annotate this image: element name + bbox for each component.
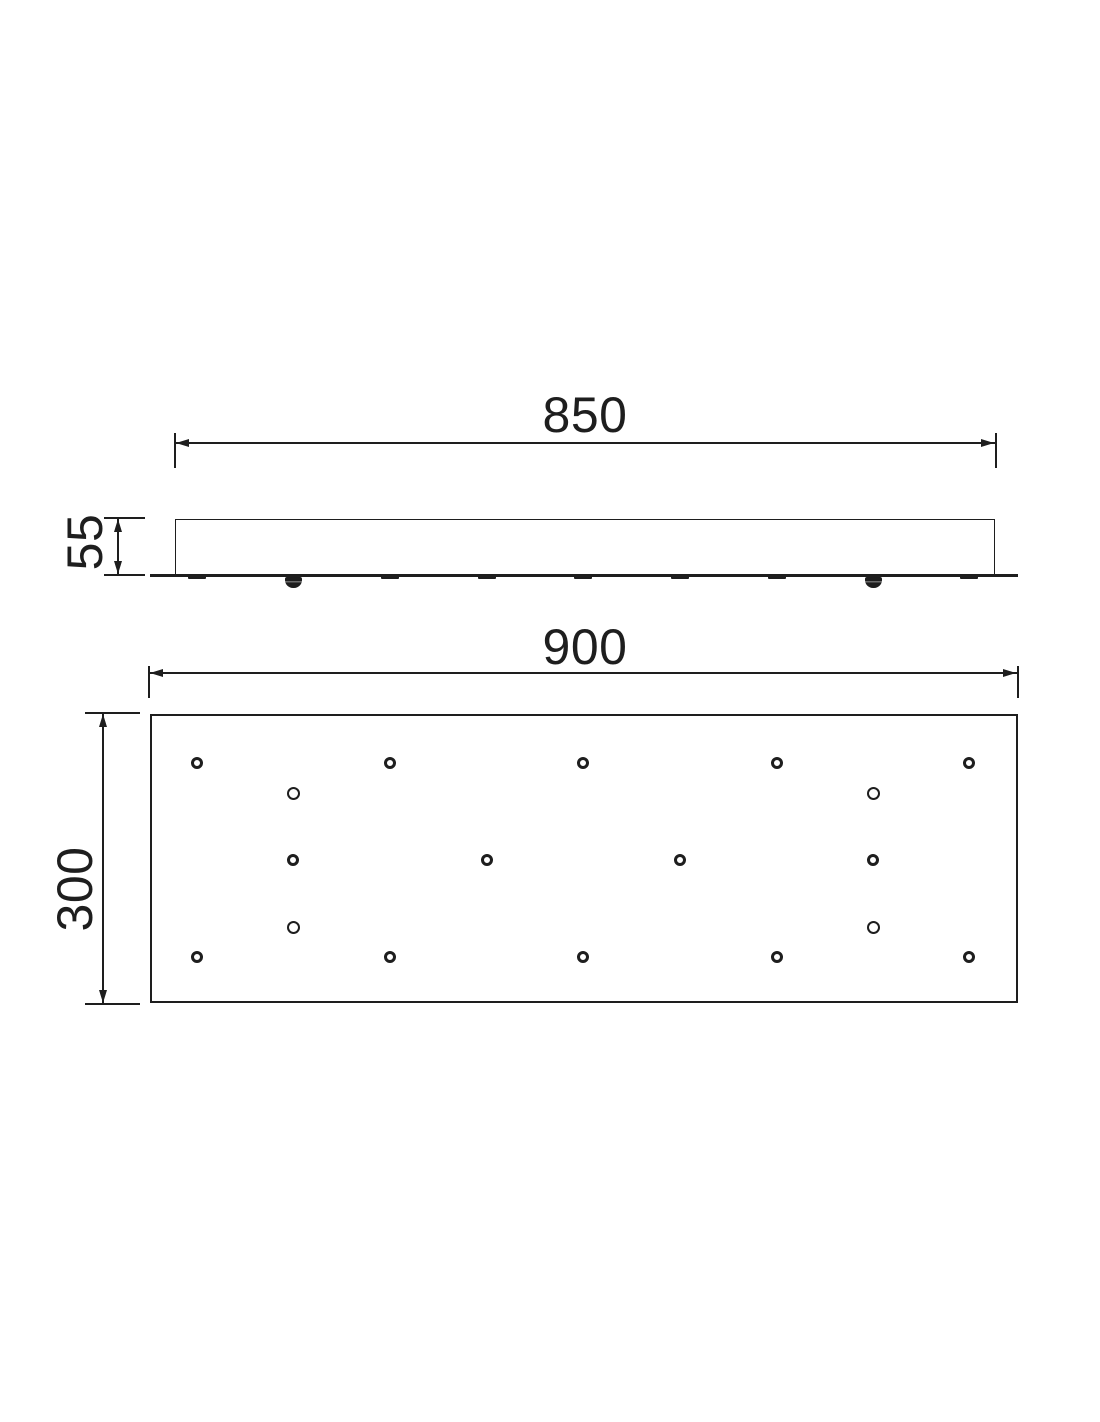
mounting-hole — [481, 854, 493, 866]
plate-width-dim-extension-right — [1017, 666, 1019, 698]
drawing-canvas: 850 55 900 300 — [0, 0, 1100, 1422]
mounting-hole — [287, 854, 299, 866]
dim-label-plate-height: 300 — [50, 847, 100, 932]
plate-height-dim-tick-top — [85, 712, 140, 714]
mounting-hole — [577, 757, 589, 769]
plan-view — [0, 0, 1100, 1422]
screw-hole — [287, 787, 300, 800]
mounting-hole — [963, 757, 975, 769]
mounting-hole — [384, 757, 396, 769]
mounting-hole — [771, 951, 783, 963]
mounting-hole — [674, 854, 686, 866]
mounting-hole — [384, 951, 396, 963]
dim-label-body-height: 55 — [60, 514, 110, 571]
plate-width-dim-arrow-left-icon — [150, 669, 163, 677]
plate-height-dim-arrow-up-icon — [99, 714, 107, 727]
mounting-hole — [191, 951, 203, 963]
mounting-hole — [577, 951, 589, 963]
dim-label-body-width: 850 — [543, 390, 628, 440]
mounting-hole — [867, 854, 879, 866]
screw-hole — [867, 787, 880, 800]
plate-height-dim-tick-bottom — [85, 1003, 140, 1005]
mounting-hole — [963, 951, 975, 963]
screw-hole — [867, 921, 880, 934]
screw-hole — [287, 921, 300, 934]
plate-height-dim-arrow-down-icon — [99, 990, 107, 1003]
mounting-hole — [191, 757, 203, 769]
dim-label-plate-width: 900 — [543, 622, 628, 672]
plate-width-dim-arrow-right-icon — [1003, 669, 1016, 677]
mounting-hole — [771, 757, 783, 769]
